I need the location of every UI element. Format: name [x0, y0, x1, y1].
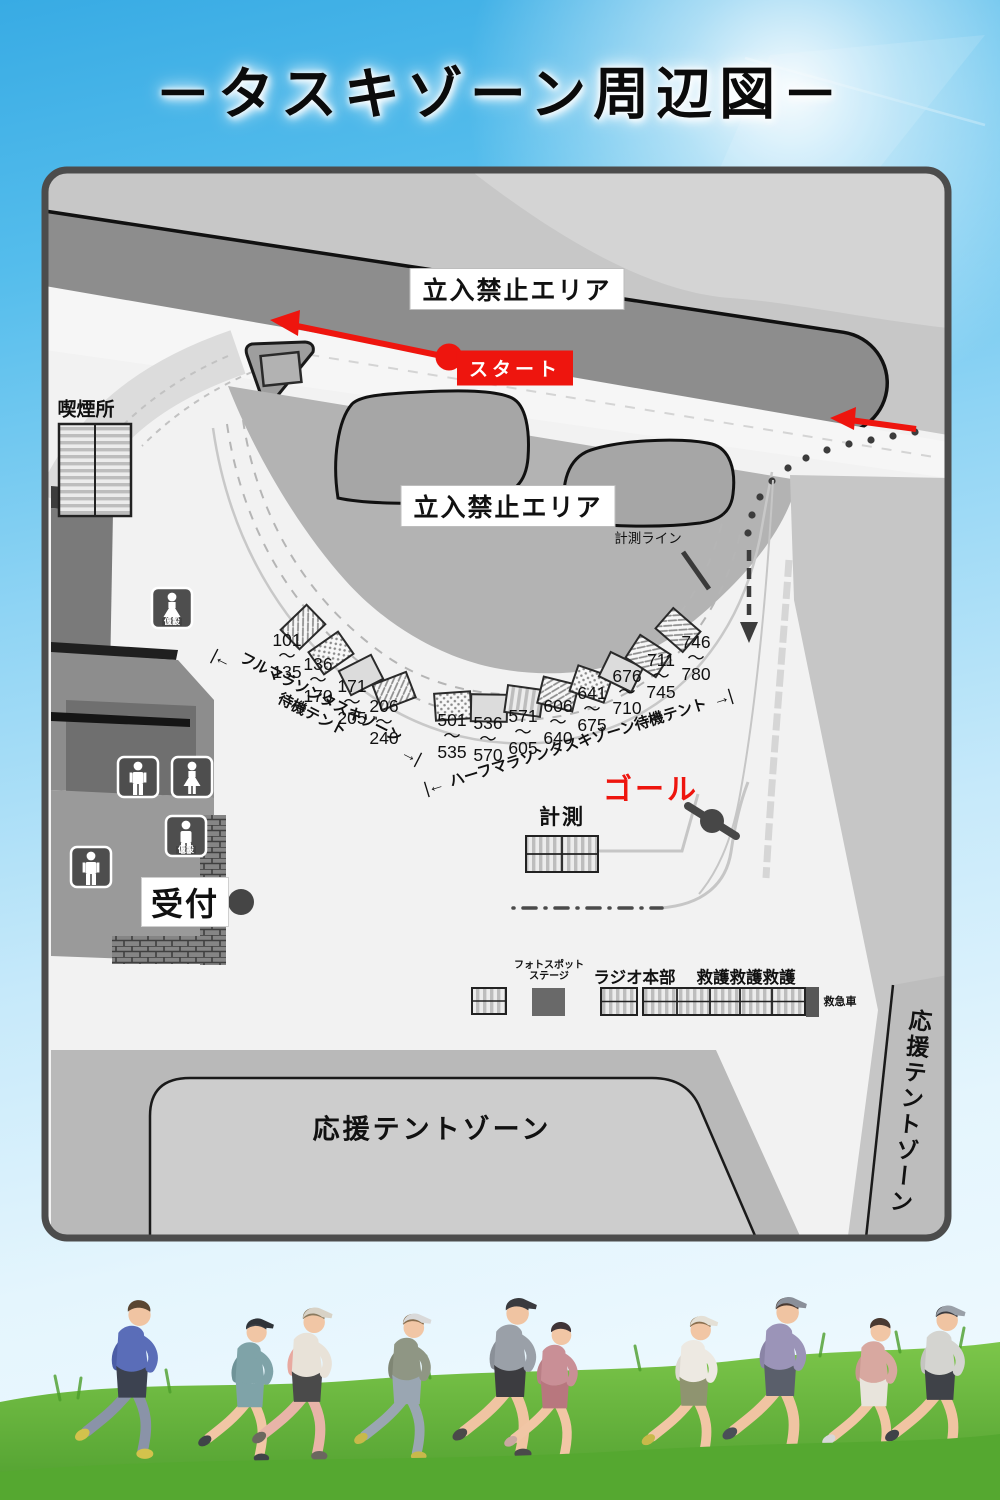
map-card [0, 170, 948, 1238]
temp-toilet-caption-1: 仮設 [162, 618, 182, 626]
timing-line-label: 計測ライン [614, 527, 682, 547]
smoking-tent [59, 424, 131, 516]
ambulance-spot [806, 987, 819, 1017]
tent-range-536-570: 536～570 [473, 715, 502, 763]
tent-range-746-780: 746～780 [681, 634, 710, 682]
tent-range-711-745: 711～745 [646, 652, 675, 700]
toilet-woman-icon [172, 757, 212, 797]
support-zone-bottom-label: 応援テントゾーン [313, 1108, 552, 1147]
toilet-man-icon-2 [71, 847, 111, 887]
page-title: －タスキゾーン周辺図－ [155, 50, 845, 131]
goal-label: ゴール [603, 766, 699, 808]
restricted-area-top-label: 立入禁止エリア [409, 268, 624, 310]
photo-stage [532, 988, 565, 1016]
tent-range-136-170: 136～170 [303, 656, 332, 704]
aid-label-2: 救護 [730, 964, 763, 988]
tent-range-676-710: 676～710 [612, 668, 641, 716]
radio-label: ラジオ [593, 964, 642, 988]
tent-range-571-605: 571～605 [508, 708, 537, 756]
timing-tent [526, 836, 598, 872]
tent-range-206-240: 206～240 [369, 698, 398, 746]
smoking-area-label: 喫煙所 [57, 395, 114, 422]
hq-label: 本部 [643, 964, 676, 988]
temp-toilet-caption-2: 仮設 [176, 846, 196, 854]
aid-label-1: 救護 [697, 964, 730, 988]
reception-label: 受付 [141, 877, 229, 927]
restricted-area-center-label: 立入禁止エリア [400, 485, 615, 527]
tent-range-171-205: 171～205 [337, 678, 366, 726]
reception-dot [228, 889, 254, 915]
tent-range-606-640: 606～640 [543, 698, 572, 746]
tent-range-501-535: 501～535 [437, 712, 466, 760]
toilet-man-icon [118, 757, 158, 797]
photo-stage-label: フォトスポット ステージ [514, 960, 584, 982]
aid-label-3: 救護 [763, 964, 796, 988]
tent-range-641-675: 641～675 [577, 685, 606, 733]
ambulance-label: 救急車 [824, 993, 857, 1009]
start-label: スタート [457, 351, 573, 386]
tent-range-101-135: 101～135 [272, 632, 301, 680]
timing-label: 計測 [539, 801, 585, 831]
